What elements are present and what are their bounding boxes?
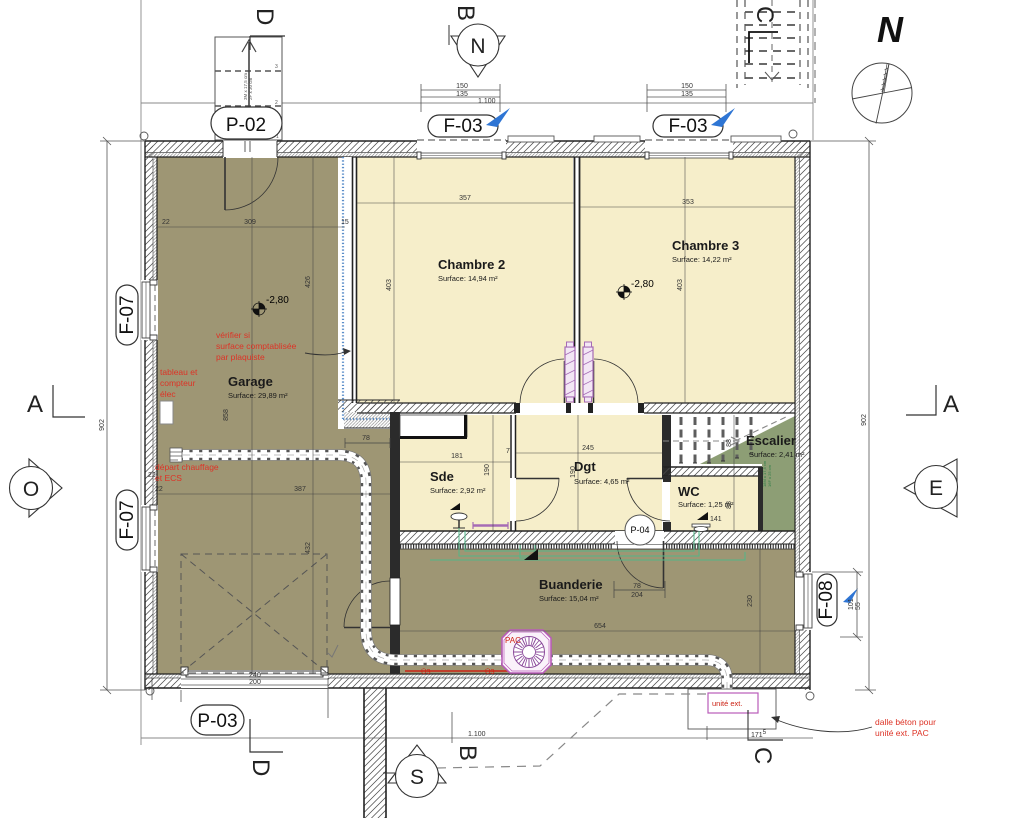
svg-text:Chambre 3: Chambre 3 (672, 238, 739, 253)
svg-text:1.100: 1.100 (468, 731, 486, 738)
svg-text:C: C (751, 6, 778, 23)
svg-text:403: 403 (386, 279, 393, 291)
svg-text:compteur: compteur (160, 378, 196, 388)
svg-text:101: 101 (848, 598, 855, 610)
svg-text:par plaquiste: par plaquiste (216, 352, 265, 362)
svg-text:Surface: 4,65 m²: Surface: 4,65 m² (574, 477, 630, 486)
svg-text:858: 858 (223, 409, 230, 421)
svg-text:2F x 30 cm: 2F x 30 cm (248, 77, 253, 100)
svg-text:403: 403 (677, 279, 684, 291)
svg-text:Escalier: Escalier (746, 433, 796, 448)
svg-text:F-03: F-03 (443, 116, 482, 137)
svg-text:78: 78 (362, 435, 370, 442)
svg-text:surface comptablisée: surface comptablisée (216, 341, 297, 351)
svg-text:Ū3: Ū3 (485, 667, 495, 676)
svg-text:élec: élec (160, 389, 176, 399)
svg-text:141: 141 (710, 516, 722, 523)
svg-text:88: 88 (726, 439, 733, 447)
svg-text:N: N (877, 9, 904, 50)
svg-text:3: 3 (275, 64, 278, 70)
svg-text:Surface: 2,92 m²: Surface: 2,92 m² (430, 486, 486, 495)
svg-text:22: 22 (162, 219, 170, 226)
svg-text:181: 181 (451, 453, 463, 460)
svg-text:Garage: Garage (228, 374, 273, 389)
svg-text:A: A (943, 391, 959, 418)
svg-text:15: 15 (341, 219, 349, 226)
svg-text:B: B (454, 745, 481, 761)
svg-text:D: D (247, 759, 274, 776)
svg-text:E: E (929, 477, 943, 500)
svg-text:Surface: 1,25 m²: Surface: 1,25 m² (678, 500, 734, 509)
svg-text:230: 230 (747, 595, 754, 607)
svg-text:-2,80: -2,80 (631, 279, 654, 290)
svg-text:190: 190 (484, 464, 491, 476)
svg-text:Ū3: Ū3 (421, 667, 431, 676)
svg-text:F-07: F-07 (117, 295, 138, 334)
svg-text:150: 150 (456, 83, 468, 90)
svg-text:B: B (452, 5, 479, 21)
svg-text:654: 654 (594, 623, 606, 630)
svg-text:Surface: 15,04 m²: Surface: 15,04 m² (539, 594, 599, 603)
svg-text:426: 426 (305, 276, 312, 288)
svg-text:-2,80: -2,80 (266, 295, 289, 306)
svg-text:PAC: PAC (505, 636, 521, 645)
svg-text:7: 7 (506, 448, 510, 455)
svg-text:902: 902 (99, 419, 106, 431)
svg-text:dalle béton pour: dalle béton pour (875, 717, 936, 727)
svg-text:357: 357 (459, 195, 471, 202)
svg-text:432: 432 (305, 542, 312, 554)
svg-text:C: C (749, 747, 776, 764)
svg-text:22: 22 (155, 486, 163, 493)
svg-text:Surface: 14,94 m²: Surface: 14,94 m² (438, 274, 498, 283)
svg-text:16F x 25 cm: 16F x 25 cm (767, 464, 772, 487)
svg-text:204: 204 (631, 592, 643, 599)
svg-text:S: S (410, 766, 424, 789)
svg-text:départ chauffage: départ chauffage (155, 462, 219, 472)
svg-text:N: N (470, 35, 485, 58)
svg-text:tableau et: tableau et (160, 367, 198, 377)
svg-text:245: 245 (582, 445, 594, 452)
svg-text:353: 353 (682, 199, 694, 206)
svg-text:F-08: F-08 (816, 580, 837, 619)
svg-text:unité ext.: unité ext. (712, 699, 742, 708)
svg-text:200: 200 (249, 679, 261, 686)
svg-text:WC: WC (678, 484, 700, 499)
svg-text:387: 387 (294, 486, 306, 493)
svg-text:Surface: 14,22 m²: Surface: 14,22 m² (672, 255, 732, 264)
svg-text:et ECS: et ECS (155, 473, 182, 483)
svg-text:D: D (251, 8, 278, 25)
svg-text:P-03: P-03 (197, 711, 237, 732)
svg-text:O: O (23, 478, 39, 501)
svg-text:Surface: 29,89 m²: Surface: 29,89 m² (228, 391, 288, 400)
svg-text:55: 55 (855, 602, 862, 610)
svg-text:Surface: 2,41 m²: Surface: 2,41 m² (749, 450, 805, 459)
svg-text:F-03: F-03 (668, 116, 707, 137)
svg-text:P-02: P-02 (226, 115, 266, 136)
svg-text:Buanderie: Buanderie (539, 577, 603, 592)
svg-text:902: 902 (861, 414, 868, 426)
svg-text:P-04: P-04 (630, 525, 649, 535)
svg-text:78: 78 (633, 583, 641, 590)
svg-text:2: 2 (275, 100, 278, 106)
svg-text:A: A (27, 391, 43, 418)
svg-text:150: 150 (681, 83, 693, 90)
svg-text:135: 135 (456, 91, 468, 98)
svg-text:F-07: F-07 (117, 500, 138, 539)
svg-text:Chambre 2: Chambre 2 (438, 257, 505, 272)
svg-text:Dgt: Dgt (574, 459, 596, 474)
svg-text:309: 309 (244, 219, 256, 226)
svg-text:Sde: Sde (430, 469, 454, 484)
svg-text:1.100: 1.100 (478, 98, 496, 105)
svg-text:unité ext. PAC: unité ext. PAC (875, 728, 929, 738)
svg-text:240: 240 (249, 672, 261, 679)
svg-text:vérifier si: vérifier si (216, 330, 250, 340)
svg-text:135: 135 (681, 91, 693, 98)
